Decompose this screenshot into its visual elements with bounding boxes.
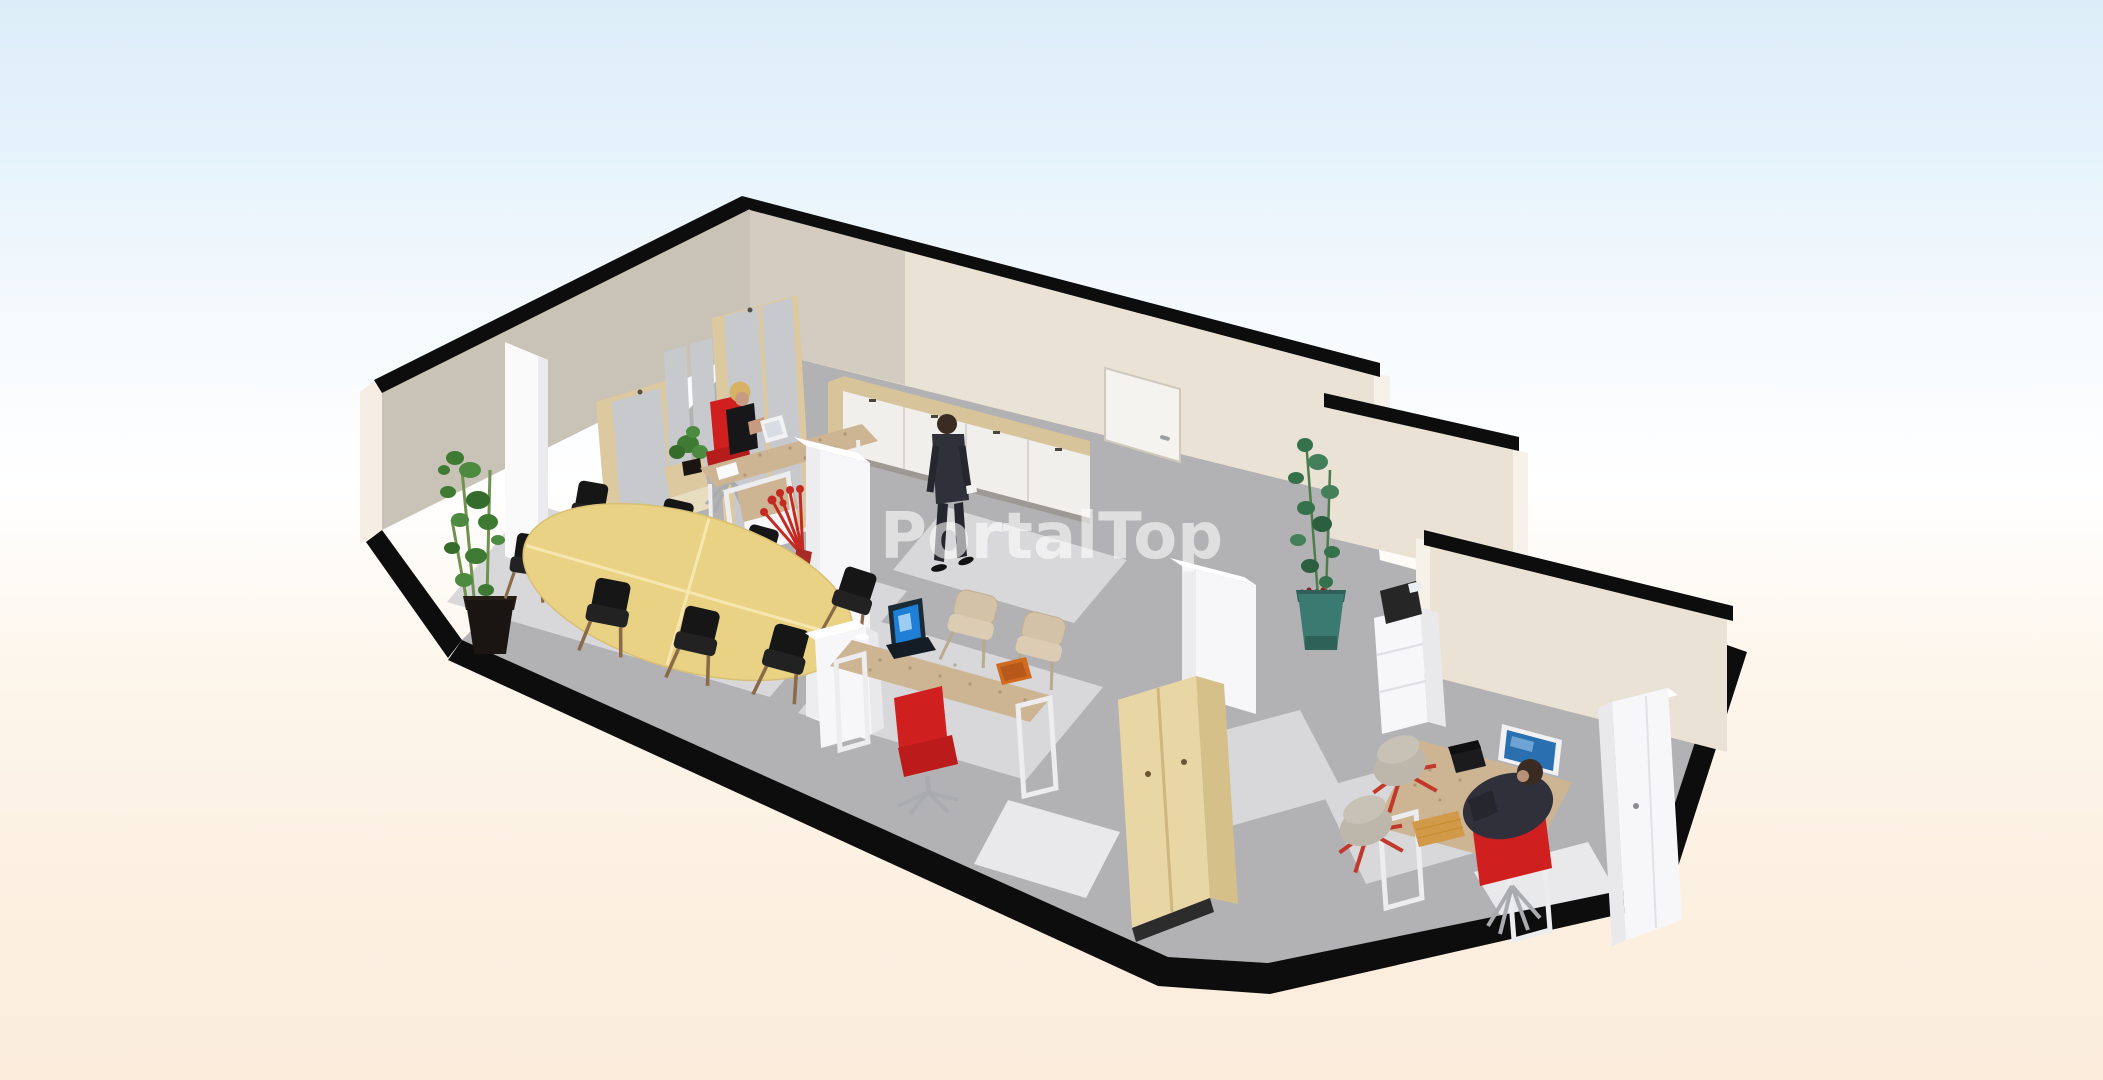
man-head	[937, 414, 957, 434]
floor-plan-canvas: PortalTop	[0, 0, 2103, 1080]
wardrobe-knob	[1145, 771, 1151, 777]
laptop-screen-glare	[898, 613, 912, 632]
cabinet-handle	[748, 308, 753, 313]
plant-pot	[466, 600, 514, 654]
tall-white-cabinet	[1598, 688, 1682, 946]
wardrobe-knob	[1181, 759, 1187, 765]
cabinet-handle	[638, 390, 643, 395]
plant-pot-shade	[1305, 636, 1337, 650]
office-3d-scene	[0, 0, 2103, 1080]
west-wall-outer-face	[360, 381, 382, 544]
cabinet-handle	[1633, 803, 1639, 809]
seated-man-face	[1517, 770, 1529, 782]
printer-cabinet	[1374, 607, 1428, 734]
receptionist-face	[735, 392, 749, 406]
bin-rim	[855, 634, 869, 640]
